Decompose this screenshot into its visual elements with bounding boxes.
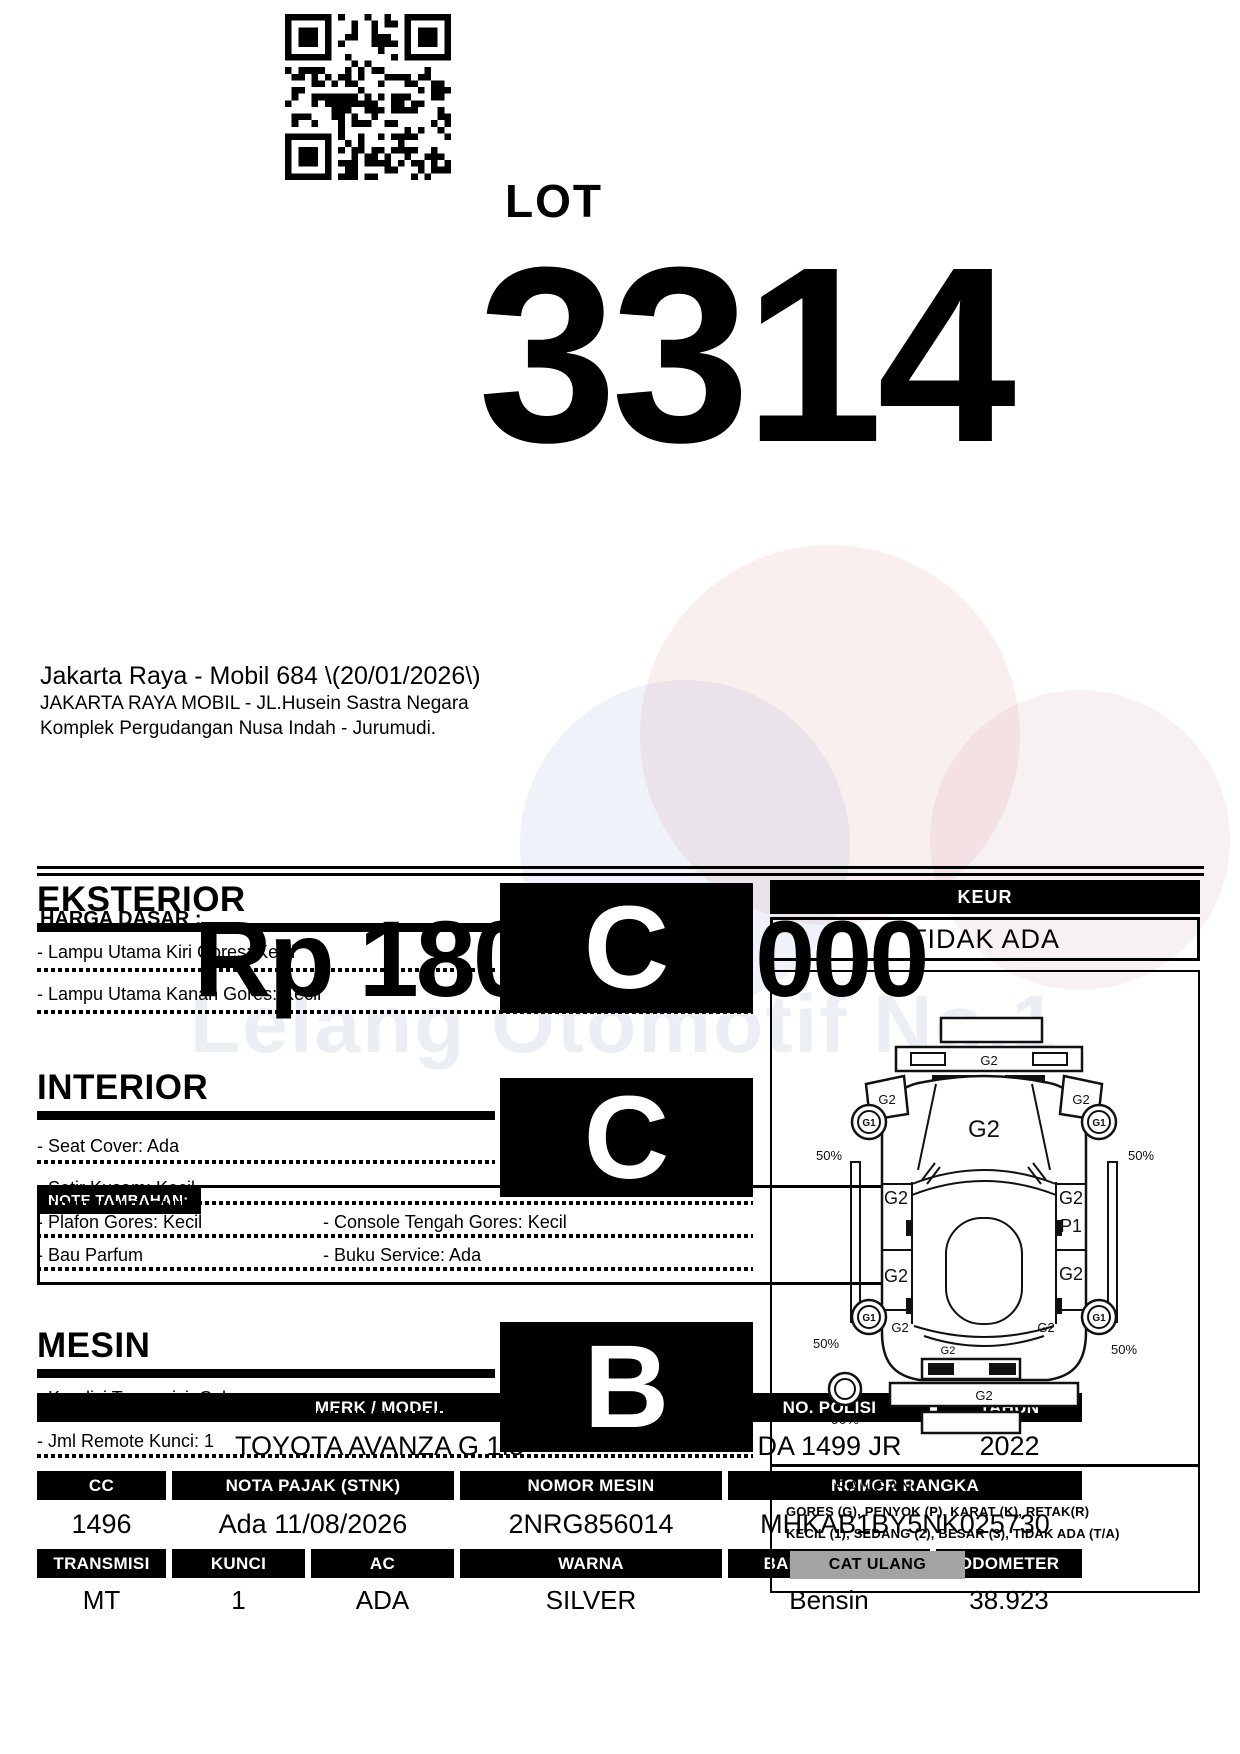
auction-title: Jakarta Raya - Mobil 684 \(20/01/2026\) xyxy=(40,662,1240,691)
value-ac: ADA xyxy=(311,1578,454,1622)
auction-venue-block: Jakarta Raya - Mobil 684 \(20/01/2026\) … xyxy=(40,662,1240,741)
value-nomor-mesin: 2NRG856014 xyxy=(460,1500,722,1549)
header-warna: WARNA xyxy=(460,1549,722,1578)
interior-item: - Bau Parfum xyxy=(37,1245,143,1265)
section-mesin-rule xyxy=(37,1369,495,1378)
label-rear-bumper: G2 xyxy=(980,1053,997,1068)
eksterior-item: - Lampu Utama Kanan Gores: Kecil xyxy=(37,984,321,1005)
label-front-left-wheel: G1 xyxy=(862,1313,876,1324)
label-left-rear-door: G2 xyxy=(884,1188,908,1208)
auction-lot-sheet: Lelang Otomotif No.1 LOT 3314 Jakarta Ra… xyxy=(0,0,1240,1754)
header-nomor-mesin: NOMOR MESIN xyxy=(460,1471,722,1500)
auction-address-line2: Komplek Pergudangan Nusa Indah - Jurumud… xyxy=(40,716,1240,741)
dotted-line xyxy=(37,1160,495,1164)
divider-double-rule xyxy=(37,866,1204,876)
label-right-rear-door: G2 xyxy=(1059,1188,1083,1208)
label-cowl: G2 xyxy=(941,1345,956,1357)
value-nota-pajak: Ada 11/08/2026 xyxy=(172,1500,454,1549)
interior-item: - Seat Cover: Ada xyxy=(37,1136,179,1157)
label-front-right-tire: 50% xyxy=(1111,1342,1137,1357)
label-left-front-door: G2 xyxy=(884,1266,908,1286)
value-kunci: 1 xyxy=(172,1578,305,1622)
grade-interior: C xyxy=(500,1078,753,1197)
value-warna: SILVER xyxy=(460,1578,722,1622)
label-front-bumper: G2 xyxy=(975,1388,992,1403)
dotted-line xyxy=(37,1411,495,1415)
label-right-rear-fender: G2 xyxy=(1072,1092,1089,1107)
keur-header: KEUR xyxy=(770,880,1200,914)
keterangan-line1: GORES (G), PENYOK (P), KARAT (K), RETAK(… xyxy=(786,1504,1184,1519)
label-front-right-wheel: G1 xyxy=(1092,1313,1106,1324)
label-rear-left-wheel: G1 xyxy=(862,1118,876,1129)
section-interior-rule xyxy=(37,1111,495,1120)
label-left-rear-fender: G2 xyxy=(878,1092,895,1107)
damage-diagram-box: G2 G2 G2 G2 xyxy=(770,970,1200,1466)
section-eksterior-title: EKSTERIOR xyxy=(37,880,246,920)
lot-number: 3314 xyxy=(478,230,1240,480)
dotted-line xyxy=(37,1267,753,1271)
auction-address-line1: JAKARTA RAYA MOBIL - JL.Husein Sastra Ne… xyxy=(40,691,1240,716)
interior-item: - Plafon Gores: Kecil xyxy=(37,1212,202,1232)
section-mesin-title: MESIN xyxy=(37,1326,150,1366)
header-ac: AC xyxy=(311,1549,454,1578)
eksterior-item: - Lampu Utama Kiri Gores: Kecil xyxy=(37,942,295,963)
label-rear-left-tire: 50% xyxy=(816,1148,842,1163)
grade-mesin: B xyxy=(500,1322,753,1452)
cat-ulang-badge: CAT ULANG xyxy=(790,1551,965,1579)
interior-item-row: - Bau Parfum - Buku Service: Ada xyxy=(37,1245,753,1266)
label-front-left-tire: 50% xyxy=(813,1336,839,1351)
keterangan-title: KETERANGAN xyxy=(786,1477,1184,1497)
dotted-line xyxy=(37,1454,753,1458)
header-nota-pajak: NOTA PAJAK (STNK) xyxy=(172,1471,454,1500)
section-interior: INTERIOR C - Seat Cover: Ada - Setir Kus… xyxy=(37,1068,753,1298)
mesin-item: - Jml Remote Kunci: 1 xyxy=(37,1431,214,1452)
interior-item: - Console Tengah Gores: Kecil xyxy=(323,1212,567,1233)
dotted-line xyxy=(37,1234,753,1238)
dotted-line xyxy=(37,968,495,972)
interior-item-row: - Plafon Gores: Kecil - Console Tengah G… xyxy=(37,1212,753,1233)
label-right-rear-door-dent: P1 xyxy=(1060,1216,1082,1236)
grade-eksterior: C xyxy=(500,883,753,1013)
label-left-front-fender: G2 xyxy=(891,1320,908,1335)
car-damage-diagram: G2 G2 G2 G2 xyxy=(772,972,1197,1464)
keur-panel: KEUR TIDAK ADA G2 G2 G2 xyxy=(770,880,1200,1593)
header-cc: CC xyxy=(37,1471,166,1500)
interior-item: - Buku Service: Ada xyxy=(323,1245,481,1266)
section-interior-title: INTERIOR xyxy=(37,1068,208,1108)
value-transmisi: MT xyxy=(37,1578,166,1622)
keur-value: TIDAK ADA xyxy=(770,917,1200,961)
section-eksterior: EKSTERIOR C - Lampu Utama Kiri Gores: Ke… xyxy=(37,880,753,1070)
header-kunci: KUNCI xyxy=(172,1549,305,1578)
keterangan-line2: KECIL (1), SEDANG (2), BESAR (3), TIDAK … xyxy=(786,1526,1184,1541)
label-right-front-fender: G2 xyxy=(1037,1320,1054,1335)
label-rear-right-tire: 50% xyxy=(1128,1148,1154,1163)
qr-code xyxy=(285,14,451,180)
value-cc: 1496 xyxy=(37,1500,166,1549)
label-rear-glass: G2 xyxy=(968,1116,1000,1143)
dotted-line xyxy=(37,1010,753,1014)
mesin-item: - Kondisi Transmisi: Cukup xyxy=(37,1388,251,1409)
dotted-line xyxy=(37,1201,753,1205)
label-spare-tire: 90% xyxy=(831,1411,859,1427)
section-mesin: MESIN B - Kondisi Transmisi: Cukup - Jml… xyxy=(37,1326,753,1466)
section-eksterior-rule xyxy=(37,923,495,932)
label-rear-right-wheel: G1 xyxy=(1092,1118,1106,1129)
label-right-front-door: G2 xyxy=(1059,1264,1083,1284)
interior-item: - Setir Kusam: Kecil xyxy=(37,1178,195,1199)
header-transmisi: TRANSMISI xyxy=(37,1549,166,1578)
keterangan-box: KETERANGAN GORES (G), PENYOK (P), KARAT … xyxy=(770,1464,1200,1593)
